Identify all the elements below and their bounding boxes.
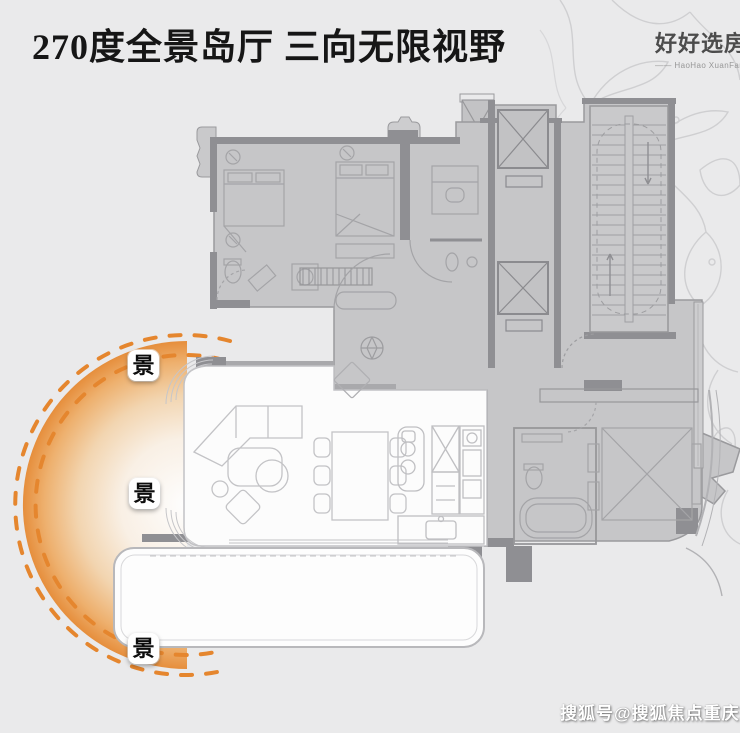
- view-badge-top: 景: [128, 350, 159, 381]
- brand-logo-name: 好好选房: [655, 26, 740, 58]
- poster: 270度全景岛厅 三向无限视野 好好选房 —— HaoHao XuanFang …: [0, 0, 740, 733]
- staircase: [590, 106, 668, 332]
- watermark: 搜狐号@搜狐焦点重庆站庆: [560, 699, 740, 724]
- view-badge-middle: 景: [129, 478, 160, 509]
- page-title: 270度全景岛厅 三向无限视野: [32, 18, 506, 70]
- balcony: [114, 548, 484, 647]
- brand-logo-tagline: —— HaoHao XuanFang ——: [655, 61, 740, 70]
- view-badge-bottom: 景: [128, 633, 159, 664]
- brand-logo: 好好选房 —— HaoHao XuanFang ——: [655, 26, 740, 70]
- floorplan: [0, 0, 740, 733]
